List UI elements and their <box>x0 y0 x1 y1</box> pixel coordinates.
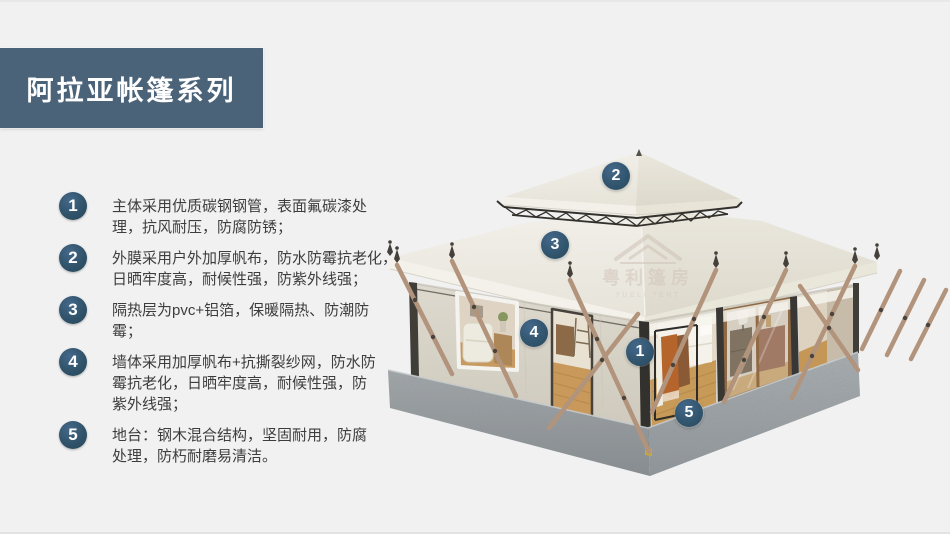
tent-callout-1: 1 <box>626 338 654 366</box>
cabinet <box>556 324 574 357</box>
feature-item-4: 4 墙体采用加厚帆布+抗撕裂纱网，防水防 霉抗老化，日晒牢度高，耐候性强，防 紫… <box>59 352 404 415</box>
vase <box>500 321 506 332</box>
feature-text-3: 隔热层为pvc+铝箔，保暖隔热、防潮防 霉； <box>112 300 369 342</box>
feature-text-2: 外膜采用户外加厚帆布，防水防霉抗老化， 日晒牢度高，耐候性强，防紫外线强； <box>112 248 397 290</box>
watermark-cn-text: 粤利篷房 <box>602 267 694 288</box>
feature-number-badge-5: 5 <box>59 421 87 449</box>
tent-illustration: 粤利篷房 YUELI TENT <box>380 140 950 520</box>
tent-callout-3: 3 <box>541 231 569 259</box>
slide-top-edge <box>0 0 950 2</box>
feature-text-5: 地台：钢木混合结构，坚固耐用，防腐 处理，防朽耐磨易清洁。 <box>112 425 367 467</box>
feature-item-5: 5 地台：钢木混合结构，坚固耐用，防腐 处理，防朽耐磨易清洁。 <box>59 425 404 467</box>
watermark-en-text: YUELI TENT <box>615 292 680 299</box>
feature-number-badge-3: 3 <box>59 296 87 324</box>
tent-callout-2: 2 <box>602 162 630 190</box>
feature-number-badge-1: 1 <box>59 192 87 220</box>
feature-list: 1 主体采用优质碳钢钢管，表面氟碳漆处 理，抗风耐压，防腐防锈； 2 外膜采用户… <box>59 196 404 477</box>
feature-number-badge-4: 4 <box>59 348 87 376</box>
glass-door-mullion <box>757 305 758 387</box>
feature-text-1: 主体采用优质碳钢钢管，表面氟碳漆处 理，抗风耐压，防腐防锈； <box>112 196 367 238</box>
top-canopy-right-face <box>636 152 740 206</box>
title-banner: 阿拉亚帐篷系列 <box>0 48 263 128</box>
page-title: 阿拉亚帐篷系列 <box>27 69 237 108</box>
feature-item-1: 1 主体采用优质碳钢钢管，表面氟碳漆处 理，抗风耐压，防腐防锈； <box>59 196 404 238</box>
tent-callout-4: 4 <box>520 319 548 347</box>
peak-cap <box>636 149 642 156</box>
feature-item-2: 2 外膜采用户外加厚帆布，防水防霉抗老化， 日晒牢度高，耐候性强，防紫外线强； <box>59 248 404 290</box>
feature-item-3: 3 隔热层为pvc+铝箔，保暖隔热、防潮防 霉； <box>59 300 404 342</box>
right-corner-post <box>853 283 859 354</box>
feature-text-4: 墙体采用加厚帆布+抗撕裂纱网，防水防 霉抗老化，日晒牢度高，耐候性强，防 紫外线… <box>112 352 376 415</box>
tent-render: 粤利篷房 YUELI TENT <box>380 140 950 520</box>
slide-canvas: 阿拉亚帐篷系列 1 主体采用优质碳钢钢管，表面氟碳漆处 理，抗风耐压，防腐防锈；… <box>0 0 950 534</box>
feature-number-badge-2: 2 <box>59 244 87 272</box>
side-table <box>494 333 512 366</box>
tent-callout-5: 5 <box>675 399 703 427</box>
plant <box>498 312 508 322</box>
